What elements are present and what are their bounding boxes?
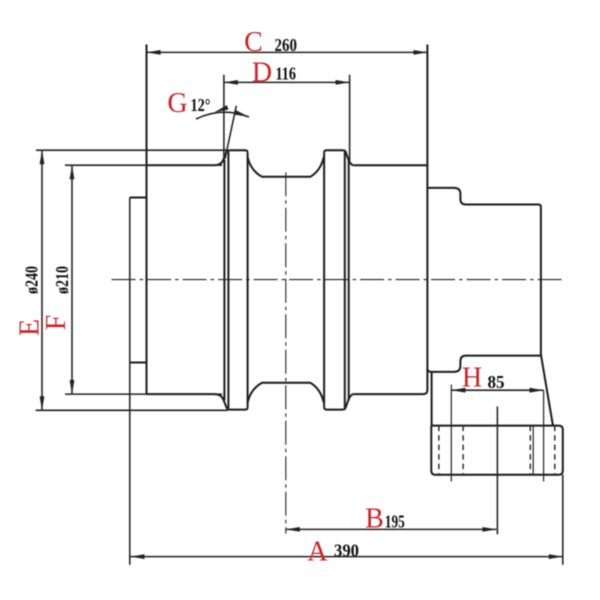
svg-text:G: G	[167, 88, 187, 119]
svg-text:ø240: ø240	[22, 266, 42, 294]
svg-text:116: 116	[276, 64, 297, 84]
svg-text:C: C	[244, 27, 263, 58]
svg-text:12°: 12°	[191, 95, 211, 115]
svg-text:B: B	[365, 503, 384, 534]
svg-text:260: 260	[275, 35, 298, 55]
svg-text:A: A	[307, 537, 328, 568]
svg-text:85: 85	[488, 372, 505, 392]
svg-text:F: F	[41, 315, 72, 331]
svg-text:ø210: ø210	[52, 266, 72, 294]
svg-text:390: 390	[334, 540, 359, 560]
svg-text:D: D	[252, 57, 272, 88]
svg-text:H: H	[462, 363, 482, 394]
svg-text:195: 195	[385, 511, 405, 531]
